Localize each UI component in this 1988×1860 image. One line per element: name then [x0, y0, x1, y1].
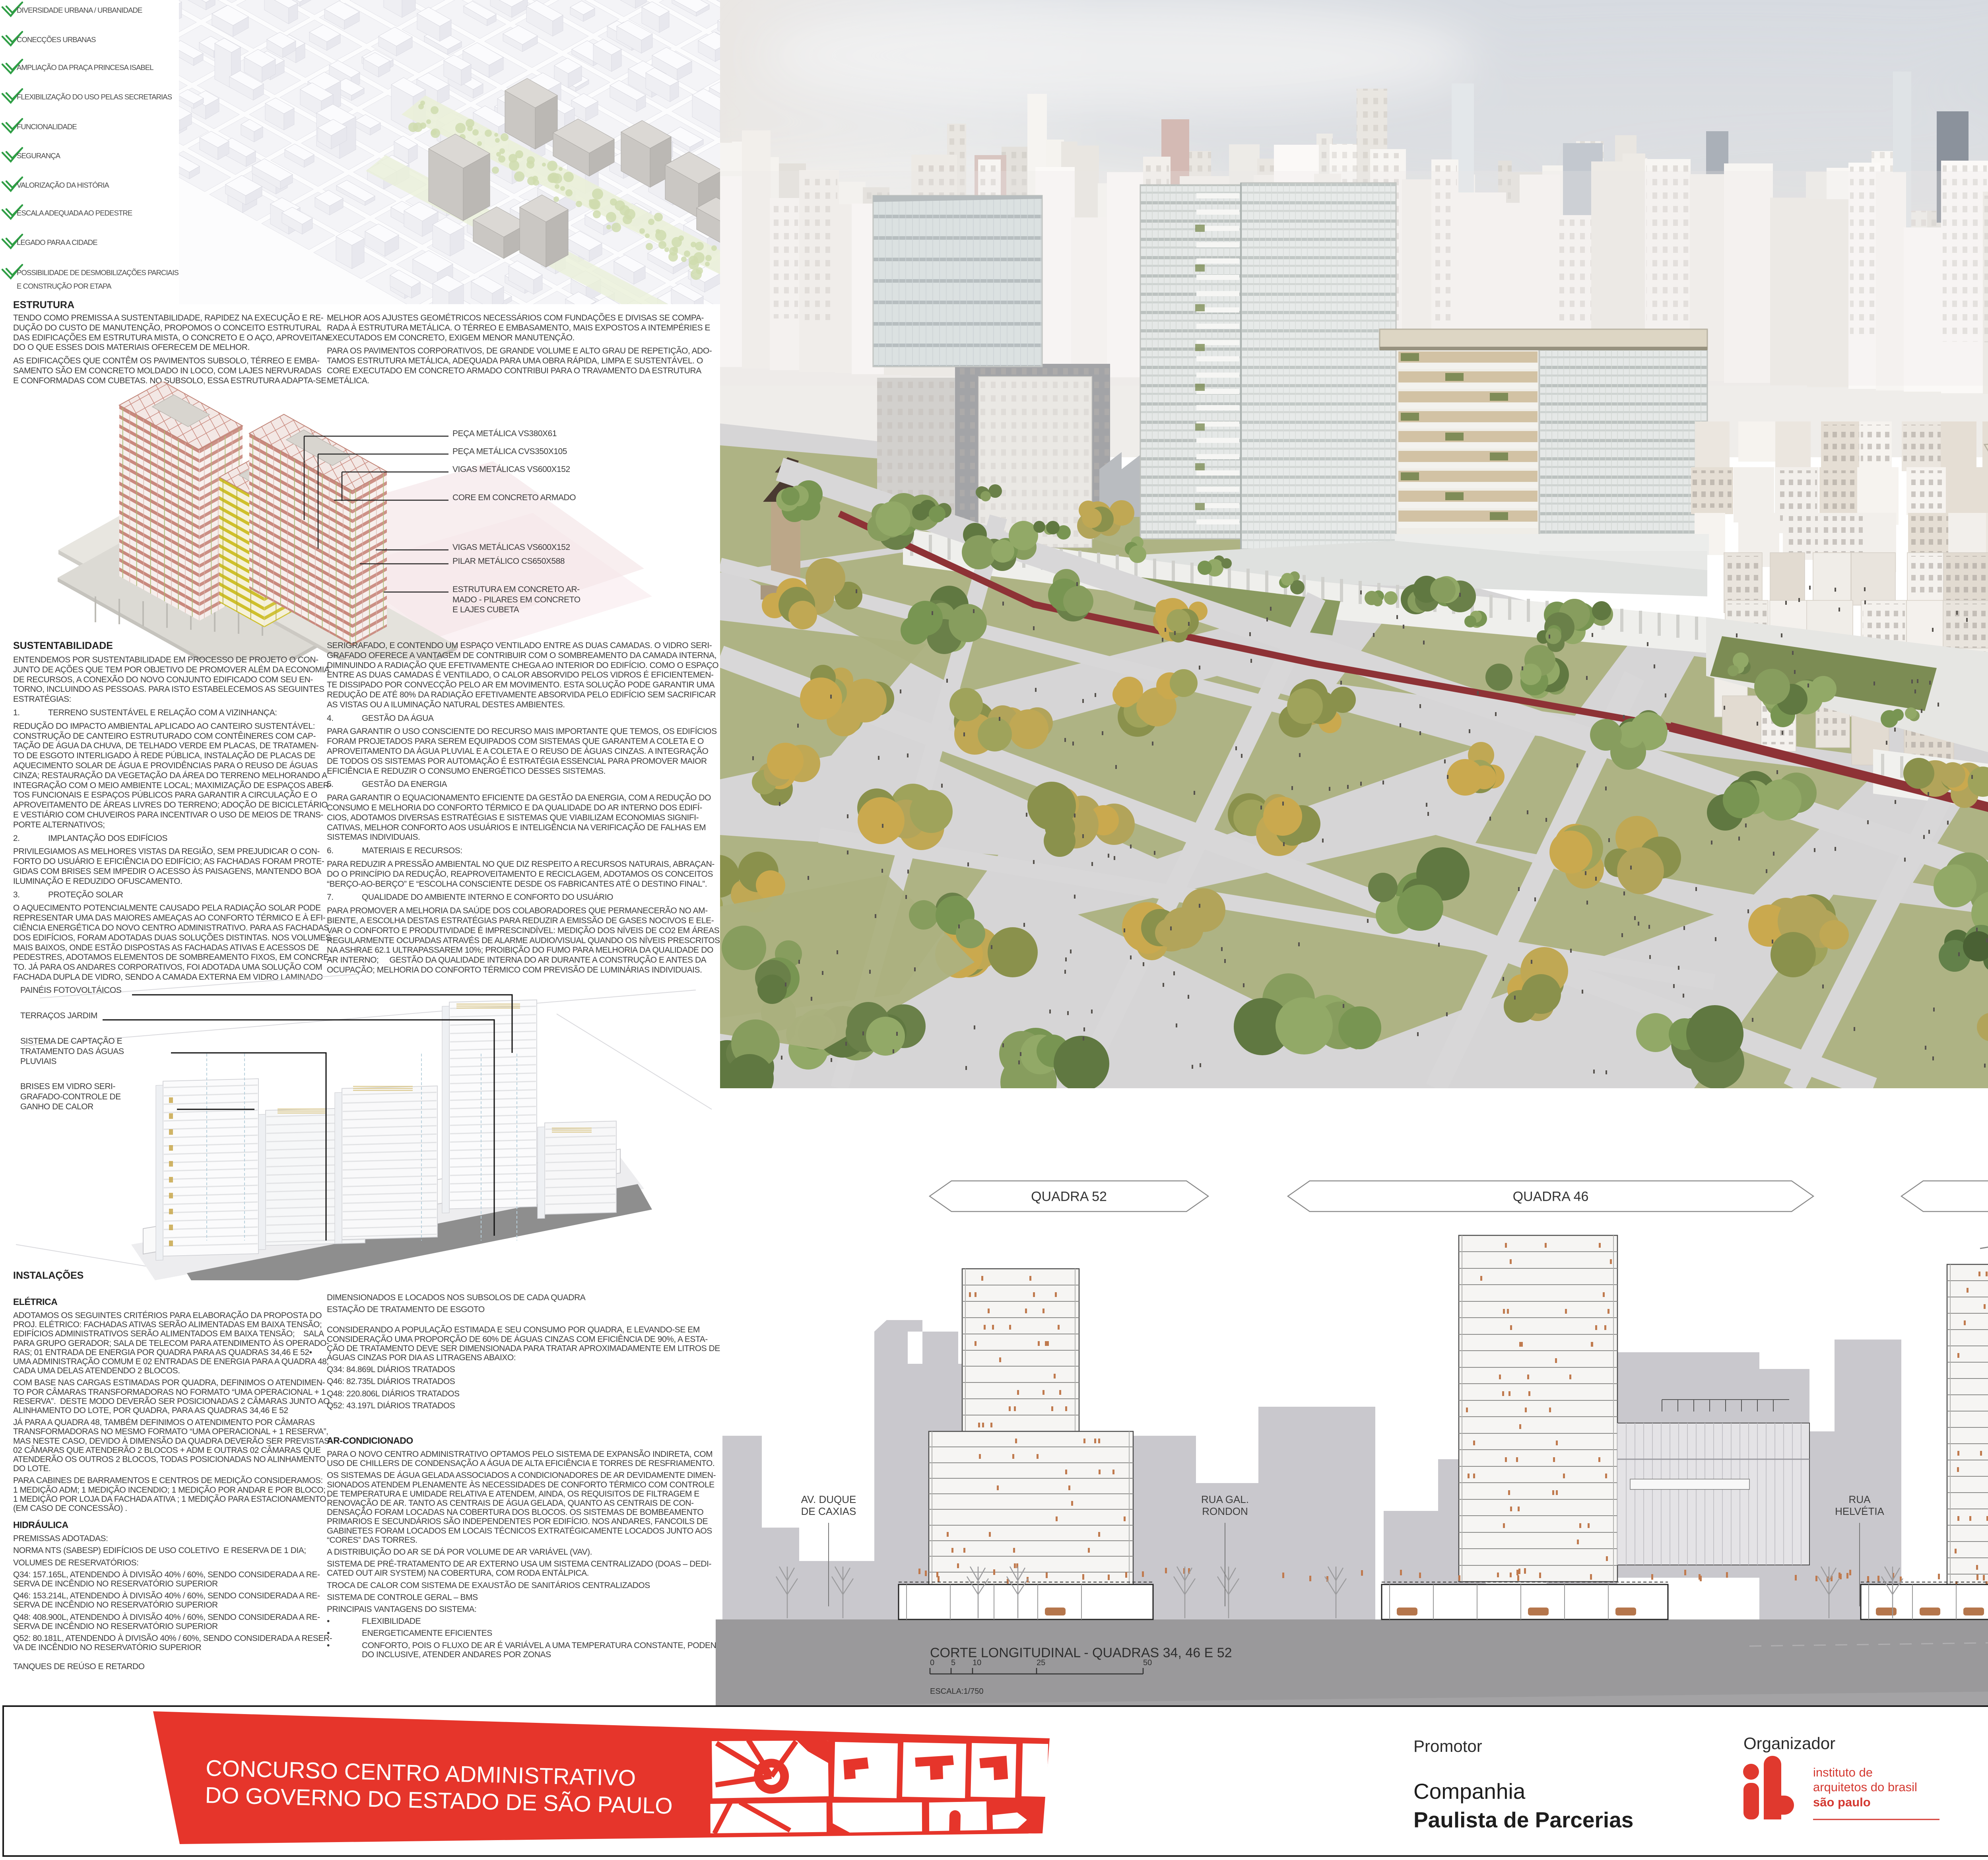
- svg-text:25: 25: [1037, 1658, 1045, 1667]
- svg-text:arquitetos do brasil: arquitetos do brasil: [1813, 1780, 1917, 1794]
- svg-text:QUADRA 46: QUADRA 46: [1513, 1189, 1589, 1204]
- svg-text:RUA GAL.: RUA GAL.: [1201, 1493, 1249, 1505]
- svg-text:Companhia: Companhia: [1413, 1779, 1526, 1804]
- svg-text:HELVÉTIA: HELVÉTIA: [1835, 1505, 1884, 1517]
- svg-text:5: 5: [951, 1658, 955, 1667]
- svg-text:instituto de: instituto de: [1813, 1765, 1873, 1779]
- svg-text:RONDON: RONDON: [1202, 1505, 1248, 1517]
- svg-text:QUADRA 52: QUADRA 52: [1031, 1189, 1107, 1204]
- svg-text:RUA: RUA: [1849, 1493, 1871, 1505]
- svg-text:AV. DUQUE: AV. DUQUE: [801, 1493, 856, 1505]
- svg-text:0: 0: [930, 1658, 934, 1667]
- svg-text:Promotor: Promotor: [1413, 1737, 1482, 1755]
- svg-text:10: 10: [973, 1658, 981, 1667]
- svg-text:DE CAXIAS: DE CAXIAS: [801, 1505, 856, 1517]
- svg-text:Organizador: Organizador: [1743, 1734, 1835, 1753]
- svg-text:são paulo: são paulo: [1813, 1795, 1871, 1809]
- svg-text:ESCALA:1/750: ESCALA:1/750: [930, 1687, 984, 1696]
- svg-text:Paulista de Parcerias: Paulista de Parcerias: [1413, 1808, 1633, 1832]
- svg-text:50: 50: [1143, 1658, 1152, 1667]
